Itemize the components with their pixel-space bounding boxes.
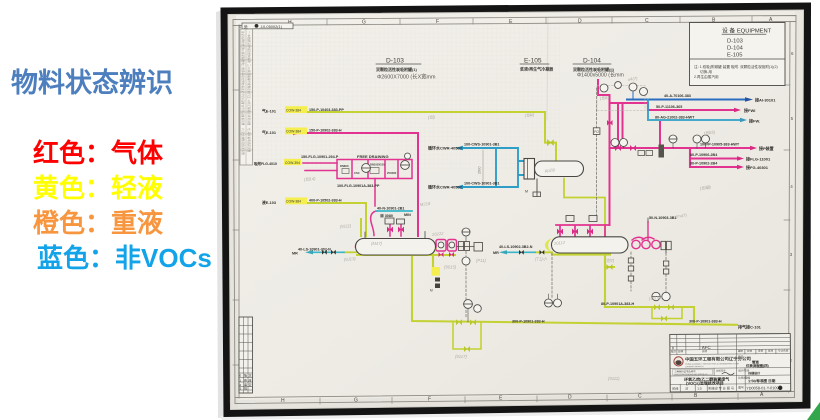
svg-text:(9015): (9015) (444, 265, 457, 270)
svg-text:(9117): (9117) (455, 354, 467, 359)
svg-text:50-N-10903-3B1: 50-N-10903-3B1 (649, 216, 676, 220)
svg-text:绝: 绝 (244, 24, 248, 29)
svg-text:审核: 审核 (758, 349, 764, 353)
svg-text:接AI-30101: 接AI-30101 (755, 97, 776, 103)
svg-text:400-P-10502-383-H: 400-P-10502-383-H (309, 199, 342, 203)
svg-text:40-LS-10902-3B2-N: 40-LS-10902-3B2-N (499, 245, 533, 249)
svg-text:(划4): (划4) (525, 112, 535, 118)
svg-text:详细设计: 详细设计 (748, 370, 760, 375)
svg-text:D-104: D-104 (583, 58, 601, 65)
svg-text:版: 版 (244, 373, 247, 378)
svg-text:五.公用工程接点详见总图: 五.公用工程接点详见总图 (247, 96, 251, 126)
svg-text:100-FLG-10901A-383-PP: 100-FLG-10901A-383-PP (337, 184, 380, 188)
svg-text:实施设 专 业 图 号: 实施设 专 业 图 号 (708, 385, 734, 390)
svg-text:COW-384: COW-384 (286, 130, 301, 134)
svg-text:校核: 校核 (747, 349, 753, 353)
svg-text:二.管道等级分界处标注记号: 二.管道等级分界处标注记号 (241, 64, 245, 96)
svg-text:250X80: 250X80 (387, 171, 397, 175)
svg-text:(M47): (M47) (371, 241, 383, 246)
svg-text:注: 1.双吸(附碳罐 装置 吸附. 双颗粒活性炭吸附(1): 注: 1.双吸(附碳罐 装置 吸附. 双颗粒活性炭吸附(1)(2) (694, 64, 778, 69)
svg-text:D: D (578, 18, 582, 24)
svg-text:日期: 日期 (678, 349, 684, 353)
svg-text:E-105: E-105 (727, 53, 742, 59)
svg-text:150-FLG-10901-294-P: 150-FLG-10901-294-P (301, 155, 339, 159)
svg-text:次: 次 (249, 373, 252, 378)
svg-text:批: 批 (244, 386, 247, 391)
svg-text:消 3080: 消 3080 (380, 213, 393, 218)
svg-text:F: F (428, 396, 431, 402)
svg-text:1:50/标准图 日期: 1:50/标准图 日期 (748, 378, 776, 383)
svg-text:D-103: D-103 (727, 39, 743, 45)
svg-text:COW-394: COW-394 (285, 161, 300, 165)
svg-text:仪表流程图(四): 仪表流程图(四) (745, 363, 769, 368)
svg-text:-10-05002(1): -10-05002(1) (260, 24, 283, 29)
svg-text:D: D (568, 394, 572, 400)
svg-text:接FW.: 接FW. (749, 117, 760, 123)
svg-text:C: C (645, 18, 649, 24)
svg-text:双颗粒活性炭吸附罐(1): 双颗粒活性炭吸附罐(1) (376, 66, 418, 72)
svg-text:(划7): (划7) (605, 258, 615, 263)
svg-text:图名: 图名 (738, 355, 744, 359)
svg-text:FREE DRAINING: FREE DRAINING (357, 154, 389, 159)
svg-text:300-P-10901-383-H: 300-P-10901-383-H (689, 319, 722, 323)
svg-text:80-P-10906-2B4: 80-P-10906-2B4 (690, 153, 718, 157)
svg-text:G: G (362, 20, 366, 26)
svg-text:H: H (281, 398, 285, 404)
svg-text:气E-101: 气E-101 (261, 130, 276, 135)
svg-text:FO: FO (594, 130, 599, 134)
svg-text:CHINA HUANQIU CONTRACTING & EN: CHINA HUANQIU CONTRACTING & ENGINEERING … (685, 362, 740, 365)
svg-text:G: G (354, 397, 358, 403)
svg-text:修: 修 (244, 377, 247, 382)
svg-text:工程编码证书及编号: 工程编码证书及编号 (674, 369, 696, 373)
svg-text:编制: 编制 (738, 349, 744, 353)
svg-text:COW-384: COW-384 (286, 200, 301, 204)
svg-text:一.本图按设计规定绘制说明: 一.本图按设计规定绘制说明 (247, 31, 251, 63)
svg-text:设 备 EQUIPMENT: 设 备 EQUIPMENT (722, 27, 772, 35)
svg-text:DN80X: DN80X (340, 164, 349, 168)
svg-text:M: M (525, 190, 528, 194)
svg-text:说明: 说明 (702, 349, 708, 353)
svg-text:(9111): (9111) (340, 223, 352, 229)
svg-text:气E-101: 气E-101 (261, 109, 276, 114)
svg-text:150-P-10902-383-H: 150-P-10902-383-H (309, 129, 342, 133)
svg-text:定: 定 (249, 382, 252, 387)
svg-text:吸附FLG-4010: 吸附FLG-4010 (254, 161, 277, 166)
svg-text:(划): (划) (428, 114, 436, 120)
svg-text:液E-103: 液E-103 (262, 200, 276, 205)
svg-text:300-P-10901-383-H: 300-P-10901-383-H (512, 319, 545, 323)
svg-text:(9111): (9111) (608, 376, 620, 381)
svg-text:COW-384: COW-384 (286, 108, 301, 112)
svg-text:CSC: CSC (354, 171, 360, 175)
svg-text:接P装置: 接P装置 (759, 145, 774, 151)
svg-text:MR: MR (493, 251, 499, 255)
svg-text:40-LS-10901-302-N: 40-LS-10901-302-N (298, 247, 331, 251)
svg-text:接FWI: 接FWI (744, 107, 755, 113)
svg-text:(划14): (划14) (304, 176, 317, 182)
svg-text:Φ1400x5000 (长mm: Φ1400x5000 (长mm (577, 71, 624, 79)
svg-text:循环水CWR-40502: 循环水CWR-40502 (428, 183, 463, 189)
svg-text:双颗粒活性炭吸附罐(||): 双颗粒活性炭吸附罐(||) (573, 66, 615, 72)
svg-text:40-A-70106-383: 40-A-70106-383 (664, 94, 691, 98)
svg-text:F: F (436, 19, 439, 25)
svg-text:七.其余说明见首页图: 七.其余说明见首页图 (247, 128, 251, 152)
svg-text:专业负责: 专业负责 (778, 349, 789, 353)
svg-text:D-103: D-103 (386, 58, 404, 65)
svg-text:循环水CWR-40502: 循环水CWR-40502 (428, 144, 463, 150)
svg-text:阶段: 阶段 (672, 386, 679, 391)
svg-text:MIN: MIN (404, 213, 411, 217)
svg-text:40-N-10901-2B1: 40-N-10901-2B1 (377, 207, 404, 211)
svg-text:改: 改 (249, 377, 252, 382)
svg-text:贫液/再生气冷凝器: 贫液/再生气冷凝器 (520, 66, 554, 72)
svg-text:图号: 图号 (738, 385, 744, 389)
svg-text:2900: 2900 (478, 166, 482, 174)
svg-text:注记说明栏管道仪表流程图例: 注记说明栏管道仪表流程图例 (241, 31, 245, 65)
svg-text:100-CWS-10901-3B1: 100-CWS-10901-3B1 (464, 142, 499, 146)
svg-text:YD0058-01-Y-0109: YD0058-01-Y-0109 (746, 386, 778, 390)
svg-text:80-P-10901A-383-H: 80-P-10901A-383-H (601, 302, 635, 306)
svg-text:三.仪表回路编号按规定执行: 三.仪表回路编号按规定执行 (247, 64, 251, 96)
svg-text:排气接C-101: 排气接C-101 (738, 324, 762, 330)
svg-text:80-AG-21002-383-HWT: 80-AG-21002-383-HWT (655, 115, 695, 119)
svg-text:Φ2600X7000 (长X宽mm: Φ2600X7000 (长X宽mm (377, 73, 436, 81)
svg-text:150-P-10403-383-PP: 150-P-10403-383-PP (309, 108, 344, 112)
svg-text:100#P-10905-383-HWT: 100#P-10905-383-HWT (700, 142, 740, 146)
svg-text:(T1)小: (T1)小 (535, 257, 548, 262)
svg-text:1:0: 1:0 (697, 387, 702, 391)
svg-text:80-P-10902-2B4: 80-P-10902-2B4 (690, 162, 718, 166)
svg-text:pp2i0: pp2i0 (544, 167, 556, 173)
svg-text:DN100X150: DN100X150 (370, 163, 385, 167)
svg-text:M: M (430, 289, 433, 293)
svg-text:接FLG-11001: 接FLG-11001 (746, 155, 771, 161)
svg-text:50-P-11106-365: 50-P-11106-365 (656, 105, 682, 109)
svg-text:批准: 批准 (768, 349, 774, 353)
svg-text:四.设备位号见设备表另册: 四.设备位号见设备表另册 (241, 96, 245, 126)
svg-text:版次: 版次 (671, 349, 677, 353)
svg-text:LIAONING BRANCH: LIAONING BRANCH (685, 365, 704, 368)
svg-text:六.安全阀整定值见专册: 六.安全阀整定值见专册 (241, 128, 245, 155)
svg-text:授权签字: 授权签字 (716, 369, 726, 373)
svg-text:100-CWS-10901-3B1: 100-CWS-10901-3B1 (464, 182, 499, 186)
svg-text:D-104: D-104 (727, 46, 744, 52)
svg-text:E-105: E-105 (524, 58, 542, 65)
svg-text:(P11): (P11) (476, 258, 487, 263)
svg-text:C: C (638, 393, 642, 399)
svg-text:接FG-40301: 接FG-40301 (746, 164, 769, 170)
svg-text:切换-用: 切换-用 (700, 69, 712, 74)
svg-text:2.再生由蒸汽用: 2.再生由蒸汽用 (694, 74, 719, 79)
svg-text:(VOCs)治理技改项目: (VOCs)治理技改项目 (686, 379, 724, 385)
svg-text:MR: MR (292, 252, 298, 256)
